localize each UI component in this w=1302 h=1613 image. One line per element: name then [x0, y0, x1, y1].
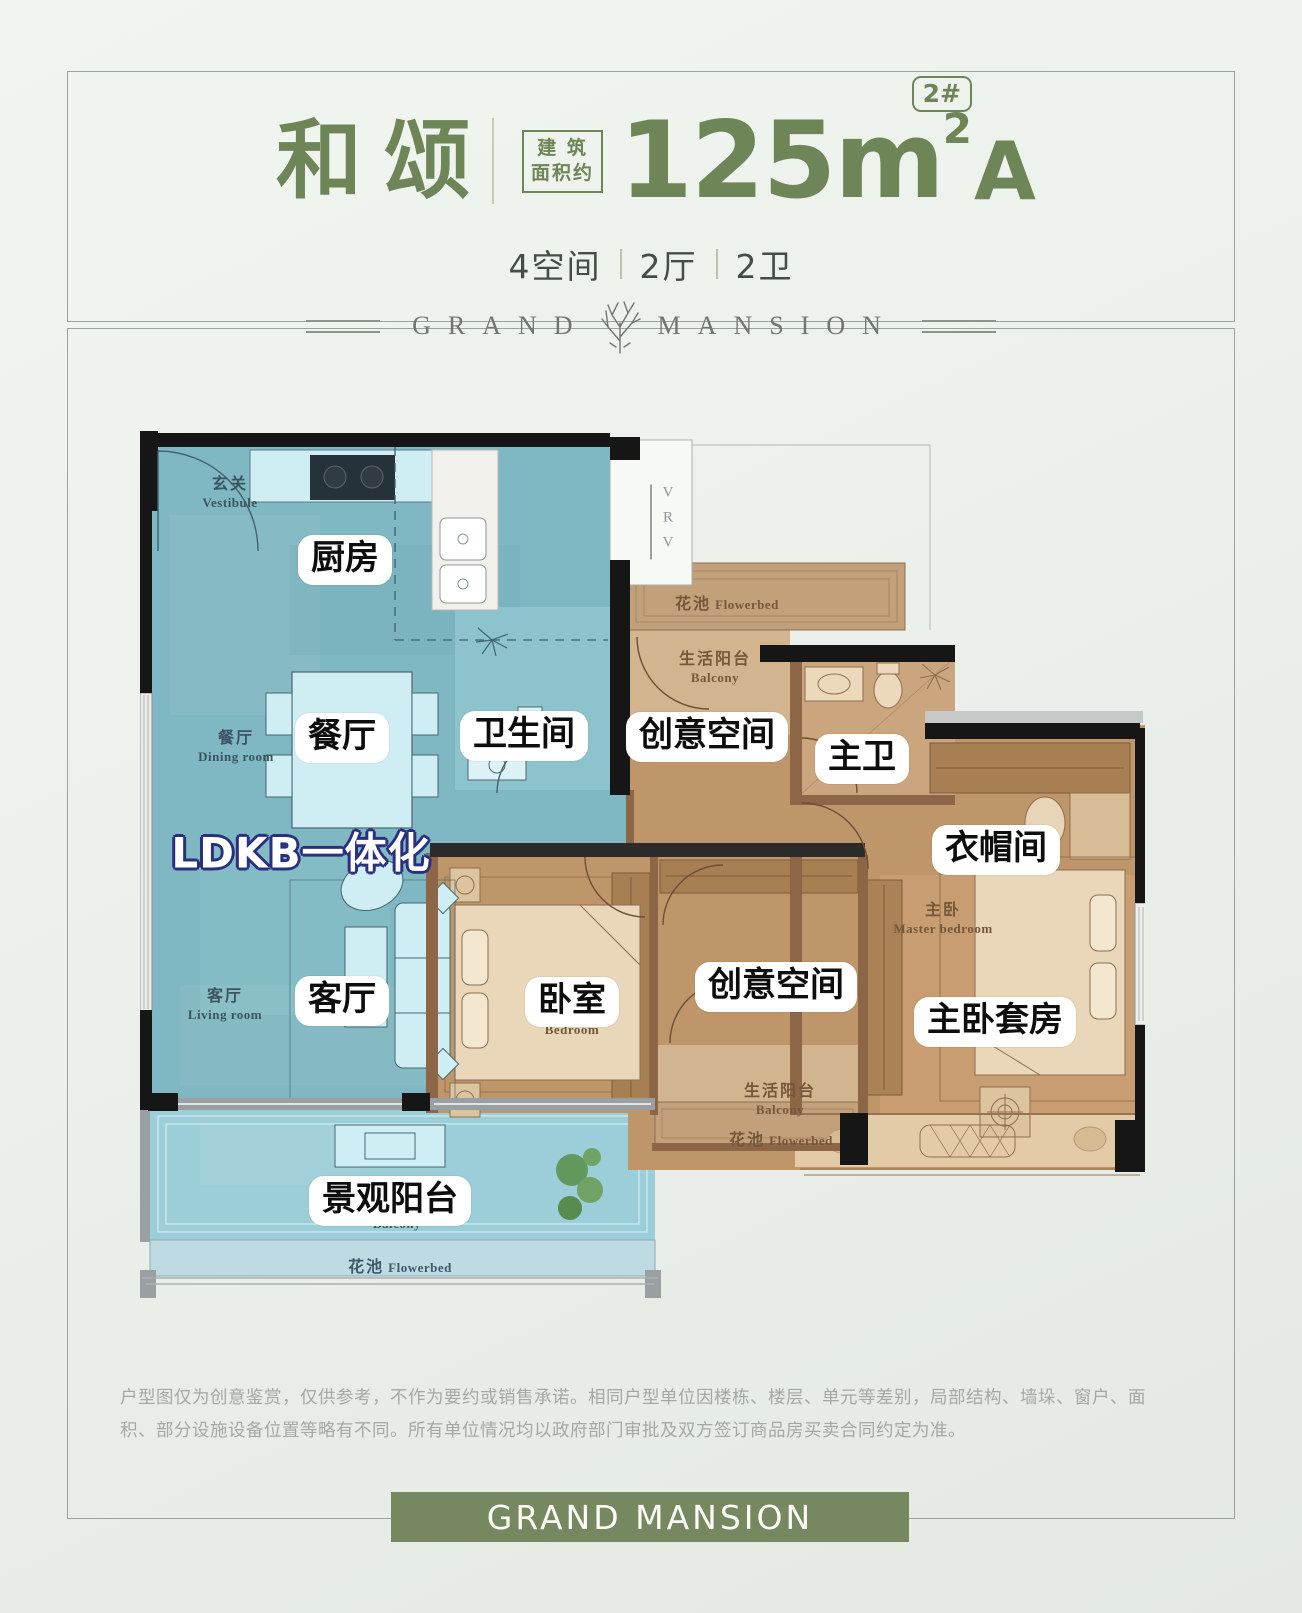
unit-type: A	[974, 139, 1036, 205]
area-prefix-line2: 面积约	[531, 163, 594, 185]
annotation-flowerbed-bottom: 花池 Flowerbed	[348, 1258, 452, 1278]
area-prefix-box: 建 筑 面积约	[522, 130, 603, 193]
room-label-scenic-balcony: 景观阳台	[309, 1176, 471, 1226]
annotation-balcony-top: 生活阳台 Balcony	[679, 650, 751, 686]
room-label-master-suite: 主卧套房	[914, 997, 1076, 1047]
spec-spaces: 4空间	[509, 240, 602, 288]
tree-icon	[594, 297, 646, 355]
area-prefix-line1: 建 筑	[531, 138, 594, 160]
creative2-closet	[660, 860, 858, 893]
brand-divider: GRAND MANSION	[0, 297, 1302, 355]
room-label-bedroom: 卧室	[525, 977, 619, 1027]
spec-separator	[716, 249, 718, 279]
floorplan-poster: 和颂 建 筑 面积约 125m 2 A 2# 4空间 2厅 2卫 GRAND M…	[0, 0, 1302, 1613]
annotation-living: 客厅 Living room	[188, 987, 262, 1023]
disclaimer-text: 户型图仅为创意鉴赏，仅供参考，不作为要约或销售承诺。相同户型单位因楼栋、楼层、单…	[120, 1382, 1164, 1449]
annotation-master-bedroom: 主卧 Master bedroom	[893, 901, 992, 937]
room-label-master-bath: 主卫	[815, 734, 909, 784]
room-label-kitchen: 厨房	[298, 535, 392, 585]
building-number-badge: 2#	[912, 76, 972, 112]
annotation-balcony-bottom: 生活阳台 Balcony	[744, 1082, 816, 1118]
ldkb-feature-label: LDKB一体化	[171, 820, 430, 881]
brand-banner-text: GRAND MANSION	[487, 1498, 813, 1537]
brand-banner: GRAND MANSION	[391, 1492, 909, 1542]
room-label-cloakroom: 衣帽间	[932, 825, 1060, 875]
area-superscript: 2	[943, 112, 972, 146]
annotation-flowerbed-top: 花池 Flowerbed	[675, 595, 779, 615]
brand-word-right: MANSION	[650, 311, 898, 341]
brand-word-left: GRAND	[404, 311, 589, 341]
spec-separator	[620, 249, 622, 279]
room-label-bathroom: 卫生间	[460, 711, 588, 761]
double-line-left	[306, 320, 380, 333]
area-number: 125m	[619, 118, 943, 205]
title-divider	[492, 118, 494, 204]
double-line-right	[922, 320, 996, 333]
area-value-group: 125m 2 A 2#	[619, 118, 1036, 205]
room-label-creative-space-2: 创意空间	[695, 962, 857, 1012]
room-label-living: 客厅	[295, 976, 389, 1026]
annotation-vestibule: 玄关 Vestibule	[202, 475, 257, 511]
spec-halls: 2厅	[640, 240, 698, 288]
annotation-dining: 餐厅 Dining room	[198, 729, 274, 765]
annotation-vrv: VRV	[650, 485, 676, 560]
project-title: 和颂	[266, 118, 492, 204]
spec-baths: 2卫	[736, 240, 794, 288]
room-label-creative-space-1: 创意空间	[626, 712, 788, 762]
specs-row: 4空间 2厅 2卫	[0, 240, 1302, 288]
annotation-flowerbed-mid: 花池 Flowerbed	[729, 1131, 833, 1151]
room-label-dining: 餐厅	[295, 713, 389, 763]
header-title-row: 和颂 建 筑 面积约 125m 2 A 2#	[0, 118, 1302, 205]
